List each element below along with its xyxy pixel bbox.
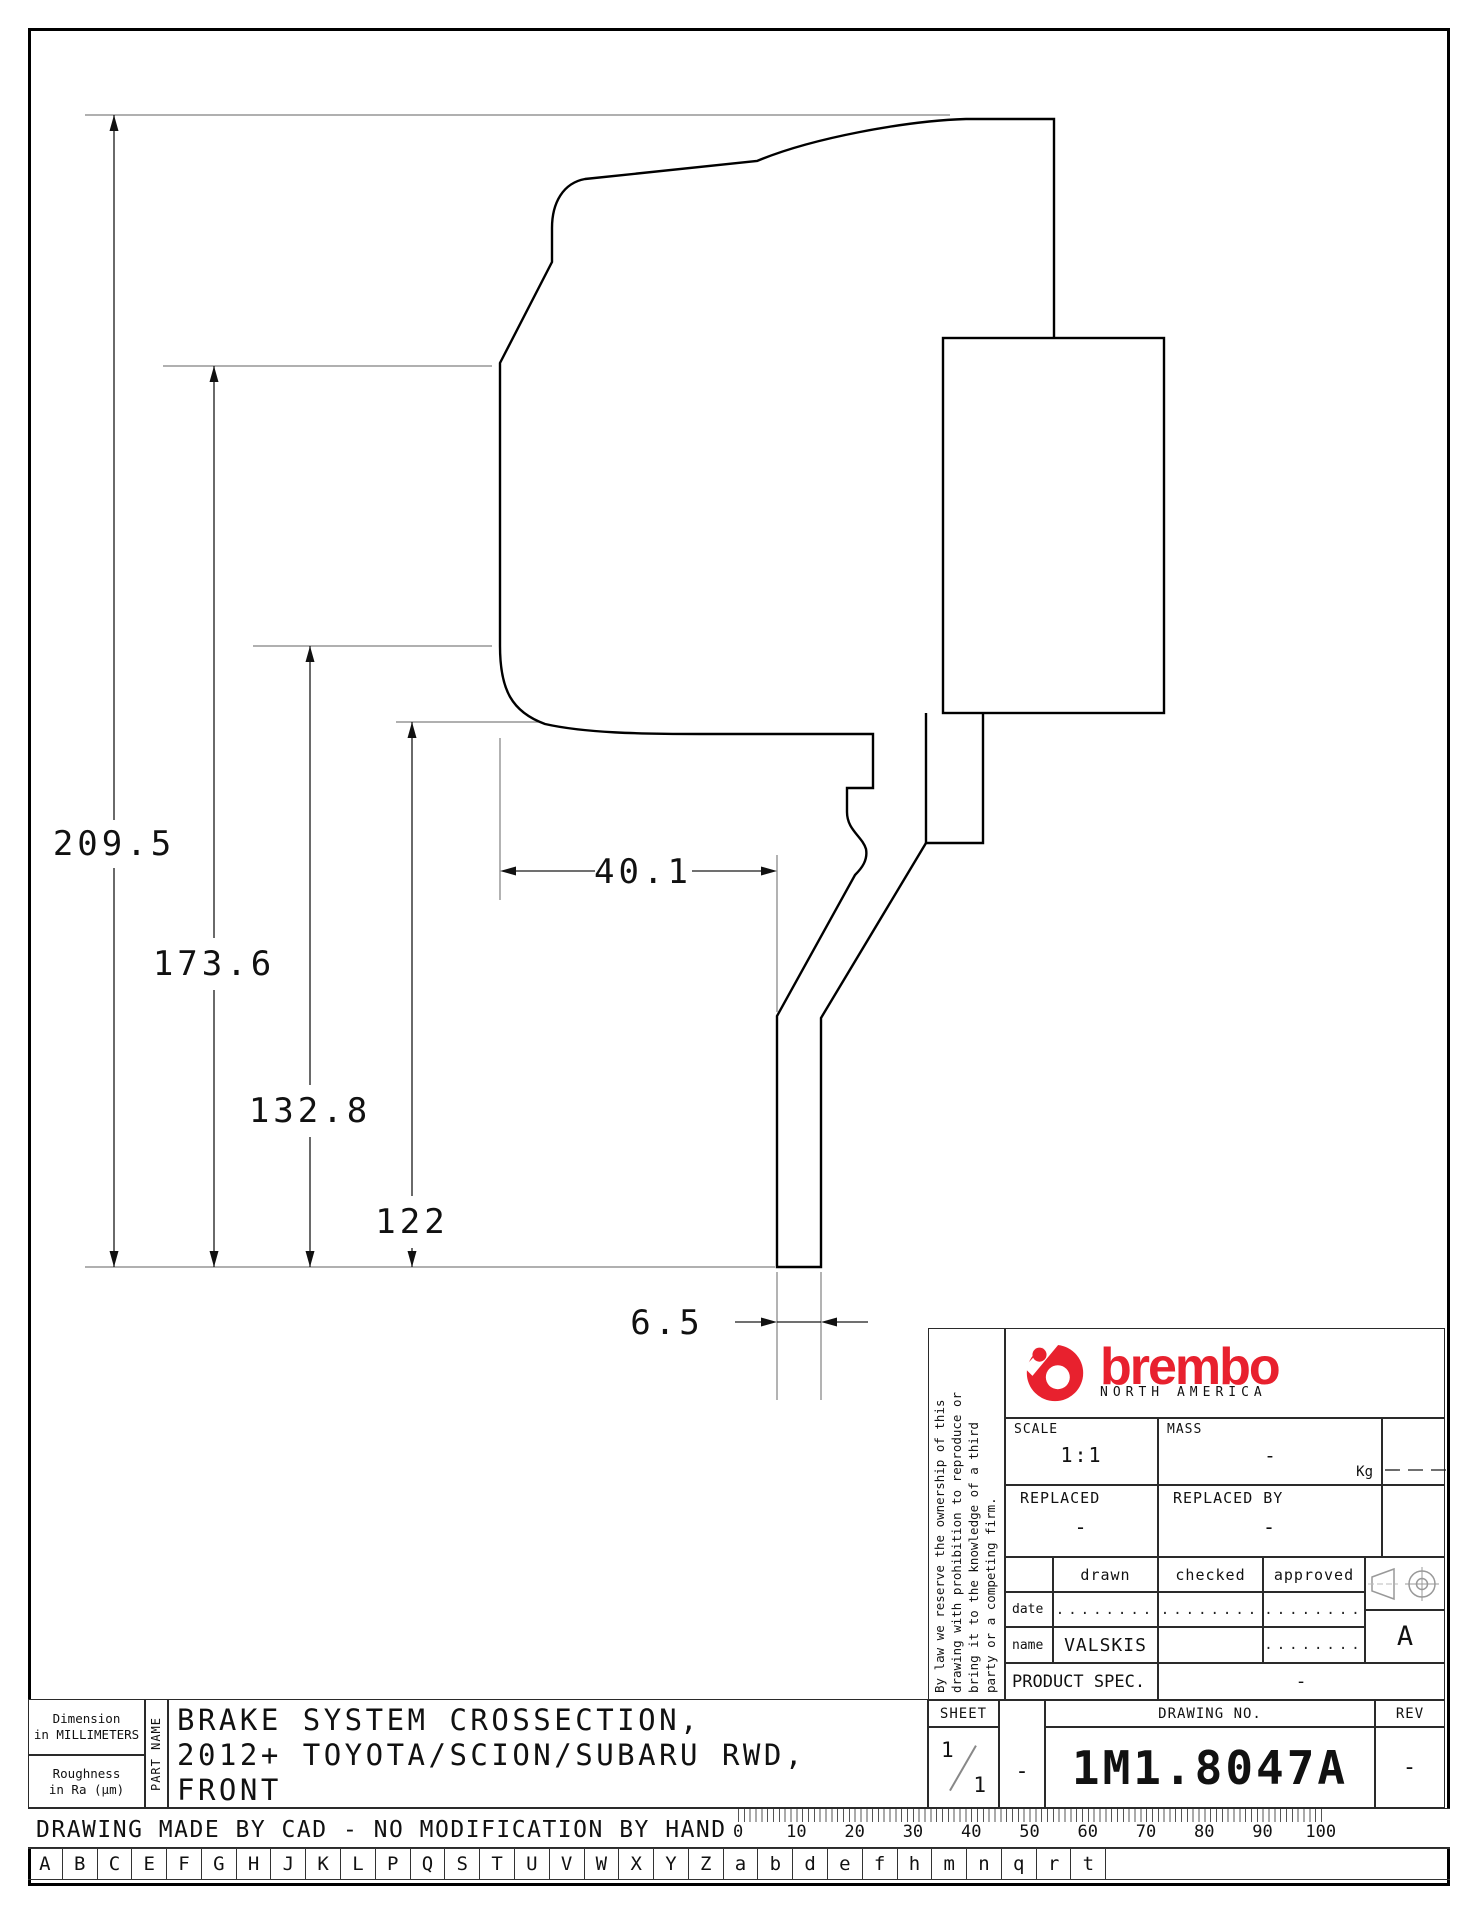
roughness-note-line1: Roughness	[29, 1766, 144, 1782]
disclaimer-box: By law we reserve the ownership of this …	[928, 1328, 1005, 1700]
rev-header: REV	[1375, 1700, 1445, 1727]
rev-value-cell: -	[1375, 1727, 1445, 1808]
list-cell: 100	[1292, 1822, 1350, 1842]
scale-label: SCALE	[1006, 1419, 1157, 1437]
list-cell: E	[132, 1849, 167, 1879]
list-cell: H	[237, 1849, 272, 1879]
replaced-cell: REPLACED -	[1005, 1485, 1158, 1557]
zone-letter-cells: ABCEFGHJKLPQSTUVWXYZabdefhmnqrt	[28, 1849, 1106, 1879]
list-cell: Z	[689, 1849, 724, 1879]
format-a-mark: A	[1397, 1621, 1413, 1652]
mass-value: -	[1159, 1445, 1381, 1467]
date-drawn-cell: ........	[1053, 1592, 1158, 1627]
approved-by-name: ........	[1264, 1637, 1363, 1653]
list-cell: B	[63, 1849, 98, 1879]
cad-note-text: DRAWING MADE BY CAD - NO MODIFICATION BY…	[36, 1817, 727, 1843]
rev-value: -	[1403, 1755, 1417, 1780]
name-checked-cell	[1158, 1627, 1263, 1663]
replaced-label: REPLACED	[1006, 1486, 1157, 1507]
part-name-label: PART NAME	[150, 1716, 164, 1790]
approved-header: approved	[1263, 1557, 1365, 1592]
mass-label: MASS	[1159, 1419, 1381, 1437]
part-name-line2: 2012+ TOYOTA/SCION/SUBARU RWD,	[177, 1738, 927, 1773]
checked-header-label: checked	[1175, 1566, 1245, 1584]
list-cell: C	[98, 1849, 133, 1879]
name-drawn-cell: VALSKIS	[1053, 1627, 1158, 1663]
units-note-line2: in MILLIMETERS	[29, 1727, 144, 1743]
drawn-header: drawn	[1053, 1557, 1158, 1592]
list-cell: K	[306, 1849, 341, 1879]
list-cell: a	[724, 1849, 759, 1879]
list-cell: V	[550, 1849, 585, 1879]
date-approved-value: ........	[1264, 1602, 1363, 1618]
drawn-header-label: drawn	[1080, 1566, 1130, 1584]
date-checked-cell: ........	[1158, 1592, 1263, 1627]
list-cell: 70	[1117, 1822, 1175, 1842]
list-cell: Y	[654, 1849, 689, 1879]
list-cell: W	[585, 1849, 620, 1879]
product-spec-label-cell: PRODUCT SPEC.	[1005, 1663, 1158, 1700]
list-cell: 40	[942, 1822, 1000, 1842]
ruler-ticks	[738, 1809, 1322, 1822]
list-cell: n	[967, 1849, 1002, 1879]
sheet-header: SHEET	[928, 1700, 999, 1727]
list-cell: U	[515, 1849, 550, 1879]
drawn-by-name: VALSKIS	[1064, 1635, 1147, 1656]
ruler-labels: 0102030405060708090100	[709, 1822, 1350, 1842]
list-cell: J	[271, 1849, 306, 1879]
date-label: date	[1012, 1602, 1043, 1617]
drawing-no-label: DRAWING NO.	[1158, 1706, 1262, 1722]
date-drawn-value: ........	[1056, 1602, 1155, 1618]
drawing-number: 1M1.8047A	[1072, 1741, 1348, 1795]
list-cell: Q	[411, 1849, 446, 1879]
list-cell: X	[619, 1849, 654, 1879]
list-cell: 30	[884, 1822, 942, 1842]
brand-wordmark: brembo	[1100, 1347, 1279, 1387]
list-cell: 0	[709, 1822, 767, 1842]
list-cell: T	[480, 1849, 515, 1879]
sheet-label: SHEET	[940, 1706, 987, 1722]
roughness-note-line2: in Ra (µm)	[29, 1782, 144, 1798]
list-cell: m	[932, 1849, 967, 1879]
list-cell: t	[1071, 1849, 1106, 1879]
sheet-denominator: 1	[973, 1773, 986, 1797]
list-cell: A	[28, 1849, 63, 1879]
list-cell: q	[1002, 1849, 1037, 1879]
replaced-value: -	[1006, 1515, 1157, 1539]
sheet-fraction: 1 1	[929, 1728, 998, 1807]
brand-region: NORTH AMERICA	[1100, 1385, 1279, 1400]
list-cell: P	[376, 1849, 411, 1879]
replaced-by-value: -	[1159, 1515, 1381, 1539]
units-note-line1: Dimension	[29, 1711, 144, 1727]
centerline-cell	[1382, 1418, 1445, 1485]
rev-label: REV	[1396, 1706, 1424, 1722]
list-cell: F	[167, 1849, 202, 1879]
list-cell: 80	[1175, 1822, 1233, 1842]
date-approved-cell: ........	[1263, 1592, 1365, 1627]
list-cell: r	[1037, 1849, 1072, 1879]
part-name-line3: FRONT	[177, 1773, 927, 1808]
list-cell: G	[202, 1849, 237, 1879]
list-cell: h	[898, 1849, 933, 1879]
format-mark-cell: A	[1365, 1610, 1445, 1663]
approved-header-label: approved	[1274, 1566, 1354, 1584]
brembo-logo-icon	[1024, 1342, 1086, 1404]
roughness-note-box: Roughness in Ra (µm)	[28, 1755, 145, 1808]
scale-value: 1:1	[1006, 1443, 1157, 1467]
sheet-value-cell: 1 1	[928, 1727, 999, 1808]
list-cell: d	[793, 1849, 828, 1879]
sign-corner-cell	[1005, 1557, 1053, 1592]
part-name-label-cell: PART NAME	[145, 1699, 168, 1808]
brand-cell: brembo NORTH AMERICA	[1005, 1328, 1445, 1418]
sheet-numerator: 1	[941, 1738, 954, 1762]
mass-cell: MASS - Kg	[1158, 1418, 1382, 1485]
drawing-no-value-cell: 1M1.8047A	[1045, 1727, 1375, 1808]
name-label: name	[1012, 1638, 1043, 1653]
zone-letter-strip: ABCEFGHJKLPQSTUVWXYZabdefhmnqrt	[28, 1848, 1450, 1880]
part-name-line1: BRAKE SYSTEM CROSSECTION,	[177, 1703, 927, 1738]
list-cell: e	[828, 1849, 863, 1879]
product-spec-value-cell: -	[1158, 1663, 1445, 1700]
empty-cell	[1382, 1485, 1445, 1557]
third-angle-projection-icon	[1368, 1564, 1442, 1604]
list-cell: L	[341, 1849, 376, 1879]
list-cell: 60	[1059, 1822, 1117, 1842]
mass-unit: Kg	[1356, 1464, 1373, 1480]
sheet-dash-cell: -	[999, 1700, 1045, 1808]
product-spec-value: -	[1296, 1671, 1308, 1692]
replaced-by-cell: REPLACED BY -	[1158, 1485, 1382, 1557]
date-row-label: date	[1005, 1592, 1053, 1627]
product-spec-label: PRODUCT SPEC.	[1012, 1672, 1145, 1692]
list-cell: f	[863, 1849, 898, 1879]
replaced-by-label: REPLACED BY	[1159, 1486, 1381, 1507]
part-name-cell: BRAKE SYSTEM CROSSECTION, 2012+ TOYOTA/S…	[168, 1699, 928, 1808]
list-cell: S	[445, 1849, 480, 1879]
list-cell: b	[758, 1849, 793, 1879]
list-cell: 90	[1233, 1822, 1291, 1842]
list-cell: 20	[826, 1822, 884, 1842]
name-row-label: name	[1005, 1627, 1053, 1663]
cad-drawing-sheet: 209.5 173.6 132.8 122 40.1 6.5 By law we…	[0, 0, 1484, 1920]
date-checked-value: ........	[1161, 1602, 1260, 1618]
drawing-no-header: DRAWING NO.	[1045, 1700, 1375, 1727]
list-cell: 10	[767, 1822, 825, 1842]
scale-cell: SCALE 1:1	[1005, 1418, 1158, 1485]
list-cell: 50	[1000, 1822, 1058, 1842]
legal-disclaimer: By law we reserve the ownership of this …	[929, 1328, 1005, 1697]
projection-symbol-cell	[1365, 1557, 1445, 1610]
name-approved-cell: ........	[1263, 1627, 1365, 1663]
units-note-box: Dimension in MILLIMETERS	[28, 1699, 145, 1755]
checked-header: checked	[1158, 1557, 1263, 1592]
sheet-dash: -	[1015, 1759, 1028, 1784]
